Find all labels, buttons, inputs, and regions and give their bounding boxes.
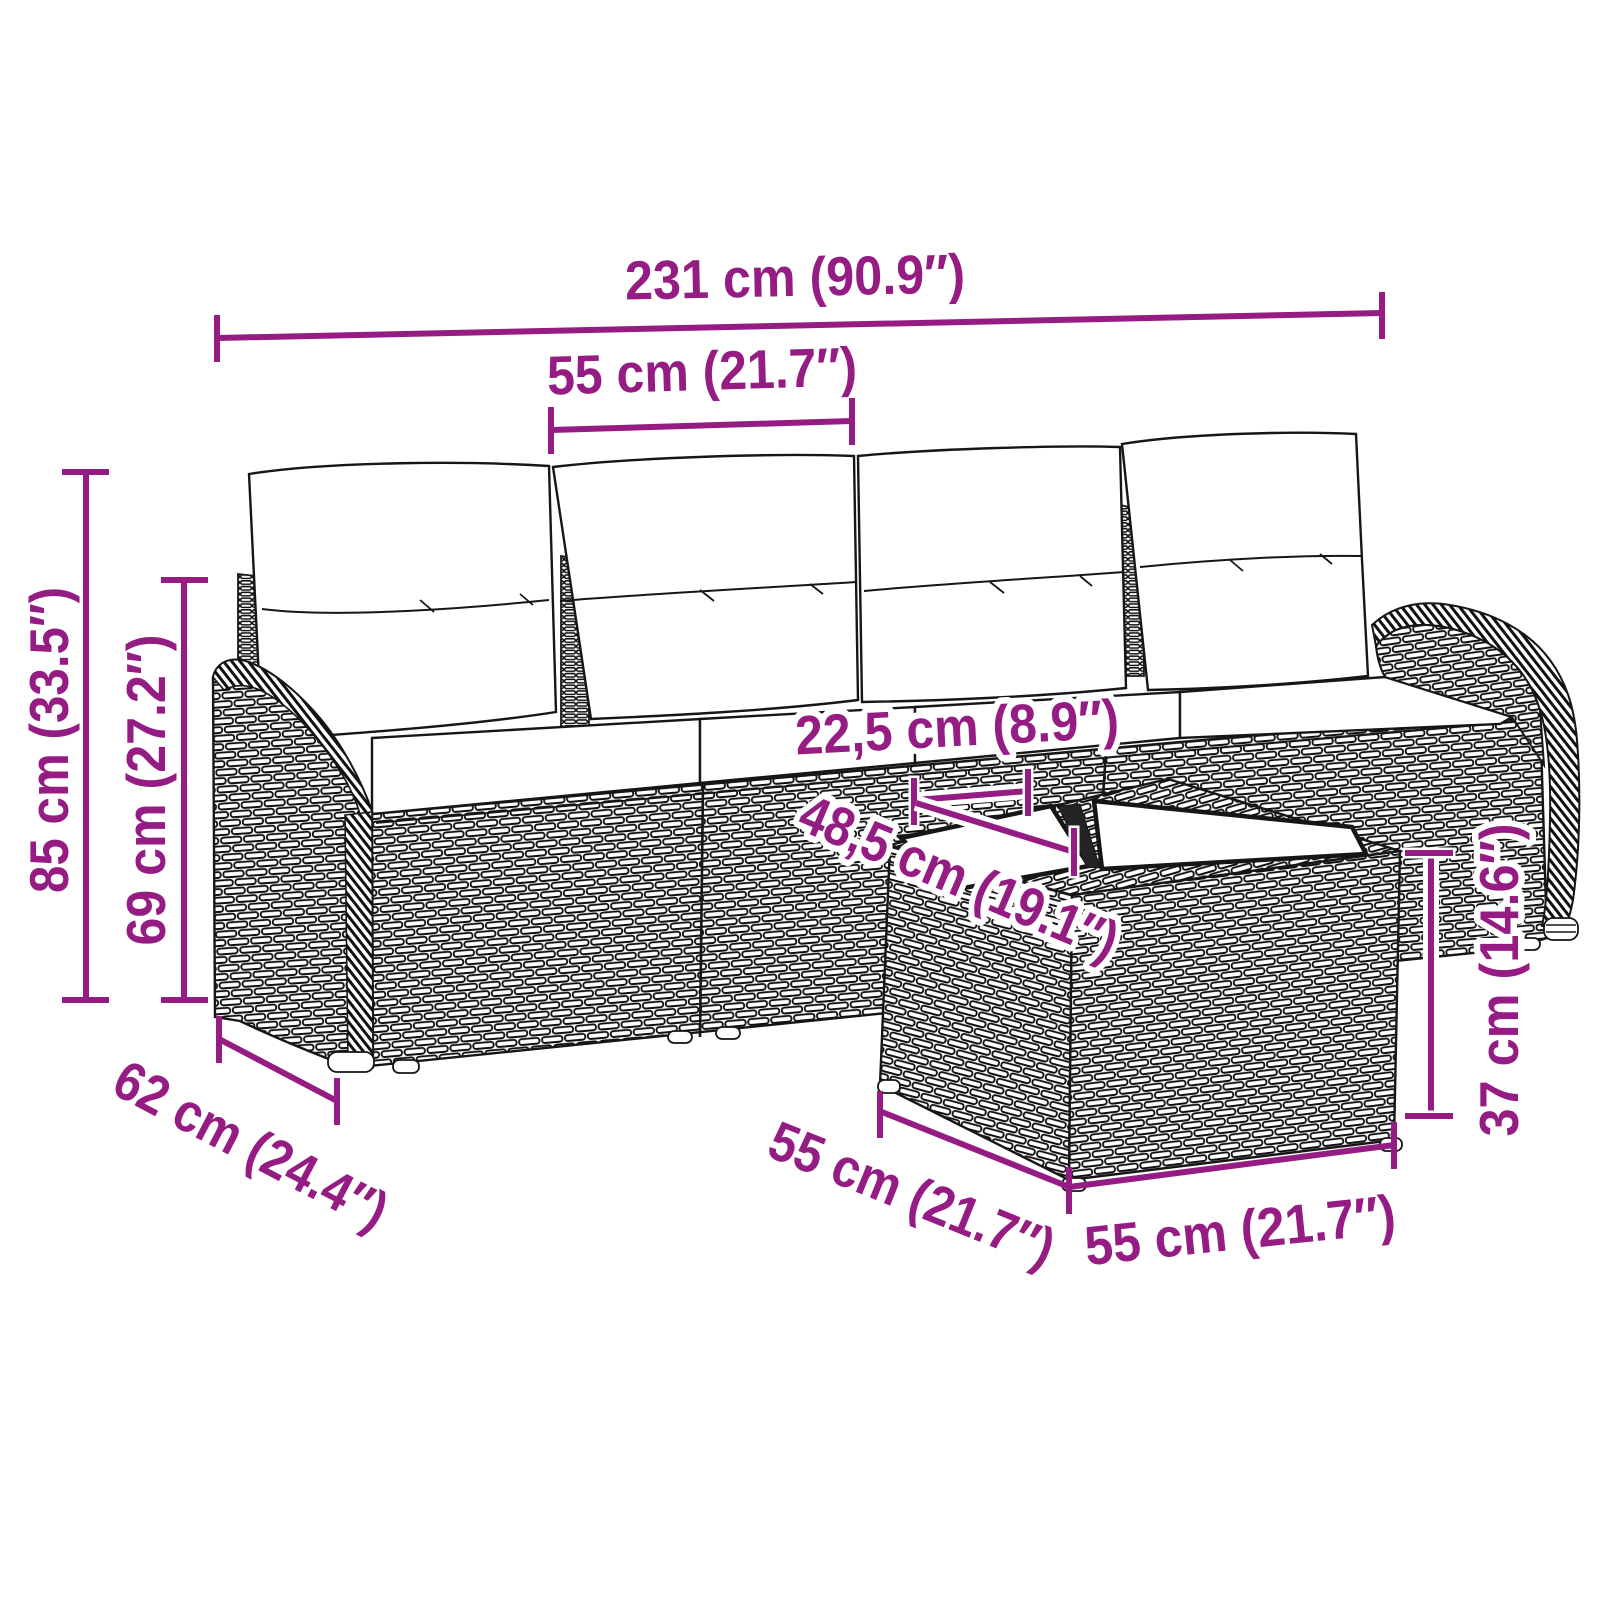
svg-text:55 cm (21.7″): 55 cm (21.7″) <box>1082 1183 1399 1277</box>
svg-text:37 cm (14.6″): 37 cm (14.6″) <box>1468 824 1530 1137</box>
svg-text:69 cm (27.2″): 69 cm (27.2″) <box>115 635 177 946</box>
svg-text:55 cm (21.7″): 55 cm (21.7″) <box>546 335 858 406</box>
svg-text:85 cm (33.5″): 85 cm (33.5″) <box>18 587 80 893</box>
svg-text:62 cm (24.4″): 62 cm (24.4″) <box>104 1048 398 1242</box>
svg-text:231 cm (90.9″): 231 cm (90.9″) <box>624 242 965 311</box>
